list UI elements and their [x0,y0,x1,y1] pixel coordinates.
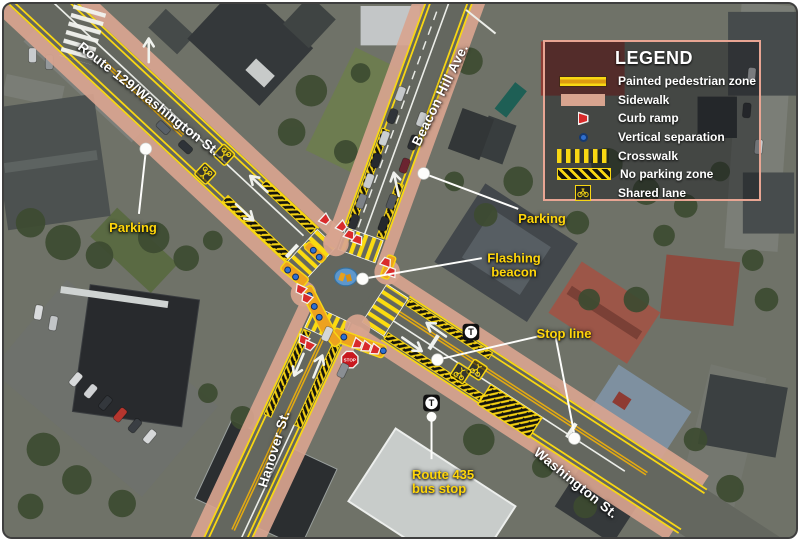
legend-label: Curb ramp [618,111,679,125]
sidewalk-swatch [557,94,609,106]
legend-label: Sidewalk [618,93,669,107]
callout-bus-stop-line2: bus stop [412,482,474,496]
stop-sign-text: STOP [344,357,356,362]
no-parking-zone-swatch [557,168,611,180]
legend-row-vertical-separation: Vertical separation [557,128,751,147]
legend-row-curb-ramp: Curb ramp [557,109,751,128]
transit-icon-letter: T [468,327,474,337]
legend-label: Vertical separation [618,130,725,144]
crosswalk-swatch [557,149,609,163]
map-canvas: STOP T T Route 129/Washington [2,2,798,539]
legend-row-crosswalk: Crosswalk [557,146,751,165]
legend-label: No parking zone [620,167,713,181]
bike-icon [577,187,589,198]
legend-label: Shared lane [618,186,686,200]
transit-icon: T [463,324,480,341]
callout-parking-left: Parking [109,221,157,235]
vertical-separation-icon [557,133,609,142]
legend-label: Crosswalk [618,149,678,163]
flashing-beacon-marker [334,268,357,286]
callout-flashing-beacon-line2: beacon [487,266,540,280]
callout-flashing-beacon: Flashing beacon [487,252,540,281]
legend-title: LEGEND [557,48,751,69]
painted-pedestrian-zone-swatch [557,77,609,86]
shared-lane-icon [557,185,609,201]
callout-stop-line: Stop line [537,327,592,341]
legend: LEGEND Painted pedestrian zone Sidewalk … [543,40,761,201]
callout-parking-right: Parking [518,212,566,226]
legend-label: Painted pedestrian zone [618,74,756,88]
transit-icon: T [423,395,440,412]
legend-row-no-parking-zone: No parking zone [557,165,751,184]
legend-row-painted-pedestrian-zone: Painted pedestrian zone [557,72,751,91]
callout-route-435-bus-stop: Route 435 bus stop [412,468,474,497]
legend-row-sidewalk: Sidewalk [557,91,751,110]
curb-ramp-icon [557,111,609,125]
legend-row-shared-lane: Shared lane [557,184,751,203]
transit-icon-letter: T [429,398,435,408]
